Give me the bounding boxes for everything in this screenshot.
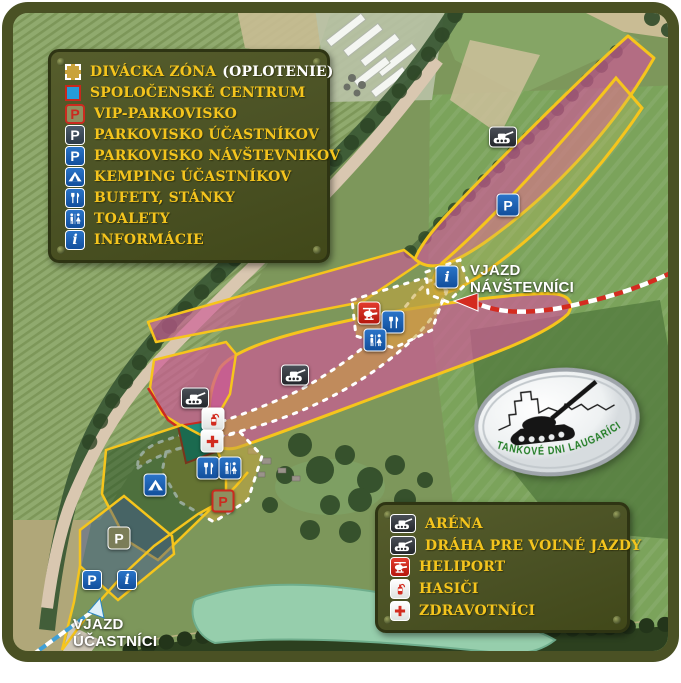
legend-item-spectator-zone: DIVÁCKA ZÓNA(OPLOTENIE) — [65, 62, 317, 83]
legend-item-free-ride-track: DRÁHA PRE VOĽNÉ JAZDY — [390, 535, 619, 556]
food-stalls-icon — [65, 188, 85, 208]
map-canvas: P i — [2, 2, 679, 662]
toilets-icon — [65, 209, 85, 229]
legend-item-information: i INFORMÁCIE — [65, 229, 317, 250]
event-logo: TANKOVÉ DNI LAUGARÍCIO — [467, 357, 648, 486]
visitors-parking-icon: P — [82, 570, 102, 590]
legend-label: HASIČI — [419, 581, 479, 597]
legend-item-firefighters: HASIČI — [390, 579, 619, 600]
participants-parking-icon: P — [65, 125, 85, 145]
heliport-icon — [390, 557, 410, 577]
legend-item-food: BUFETY, STÁNKY — [65, 187, 317, 208]
legend-label: PARKOVISKO NÁVŠTEVNIKOV — [94, 148, 340, 164]
toilets-icon — [364, 329, 387, 352]
visitors-parking-icon: P — [497, 194, 520, 217]
legend-label: ARÉNA — [425, 516, 483, 532]
legend-label: HELIPORT — [419, 559, 505, 575]
vip-parking-icon: P — [65, 104, 85, 124]
medical-cross-icon — [390, 601, 410, 621]
info-icon: i — [65, 230, 85, 250]
legend-item-participants-parking: P PARKOVISKO ÚČASTNÍKOV — [65, 125, 317, 146]
info-icon: i — [436, 266, 459, 289]
info-icon: i — [117, 570, 137, 590]
map-frame: P i — [2, 2, 679, 662]
legend-item-social-center: SPOLOČENSKÉ CENTRUM — [65, 83, 317, 104]
legend-label: DRÁHA PRE VOĽNÉ JAZDY — [425, 538, 641, 554]
legend-label-suffix: (OPLOTENIE) — [222, 64, 333, 80]
legend-main: DIVÁCKA ZÓNA(OPLOTENIE) SPOLOČENSKÉ CENT… — [48, 49, 330, 263]
legend-label: BUFETY, STÁNKY — [94, 190, 235, 206]
tank-icon — [390, 514, 416, 533]
legend-item-visitors-parking: P PARKOVISKO NÁVŠTEVNIKOV — [65, 146, 317, 167]
legend-item-toilets: TOALETY — [65, 208, 317, 229]
legend-item-arena: ARÉNA — [390, 513, 619, 534]
visitors-parking-icon: P — [65, 146, 85, 166]
fire-extinguisher-icon — [390, 579, 410, 599]
tank-icon — [281, 365, 309, 386]
legend-label: SPOLOČENSKÉ CENTRUM — [90, 85, 305, 101]
legend-label: INFORMÁCIE — [94, 232, 204, 248]
legend-bottom: ARÉNA DRÁHA PRE VOĽNÉ JAZDY HELIPORT — [375, 502, 630, 633]
legend-item-camping: KEMPING ÚČASTNÍKOV — [65, 166, 317, 187]
food-stalls-icon — [197, 457, 220, 480]
spectator-zone-swatch-icon — [65, 64, 81, 80]
medical-cross-icon — [201, 430, 224, 453]
heliport-icon — [358, 302, 381, 325]
vip-parking-icon: P — [212, 490, 235, 513]
camping-icon — [65, 167, 85, 187]
toilets-icon — [219, 457, 242, 480]
social-center-swatch-icon — [65, 85, 81, 101]
legend-item-heliport: HELIPORT — [390, 557, 619, 578]
legend-item-vip-parking: P VIP-PARKOVISKO — [65, 104, 317, 125]
legend-label: PARKOVISKO ÚČASTNÍKOV — [94, 127, 319, 143]
legend-label: KEMPING ÚČASTNÍKOV — [94, 169, 291, 185]
legend-label: VIP-PARKOVISKO — [94, 106, 237, 122]
participants-parking-icon: P — [108, 527, 131, 550]
legend-label: TOALETY — [94, 211, 170, 227]
tank-icon — [390, 536, 416, 555]
tank-icon — [489, 127, 517, 148]
fire-extinguisher-icon — [202, 408, 225, 431]
legend-label: ZDRAVOTNÍCI — [419, 603, 535, 619]
camping-icon — [144, 474, 167, 497]
tank-icon — [181, 388, 209, 409]
legend-label: DIVÁCKA ZÓNA — [90, 64, 216, 80]
visitors-entrance-label: VJAZD NÁVŠTEVNÍCI — [470, 263, 574, 297]
legend-item-medics: ZDRAVOTNÍCI — [390, 601, 619, 622]
participants-entrance-label: VJAZD ÚČASTNÍCI — [73, 617, 157, 651]
tank-days-site-map: P i — [0, 0, 681, 683]
